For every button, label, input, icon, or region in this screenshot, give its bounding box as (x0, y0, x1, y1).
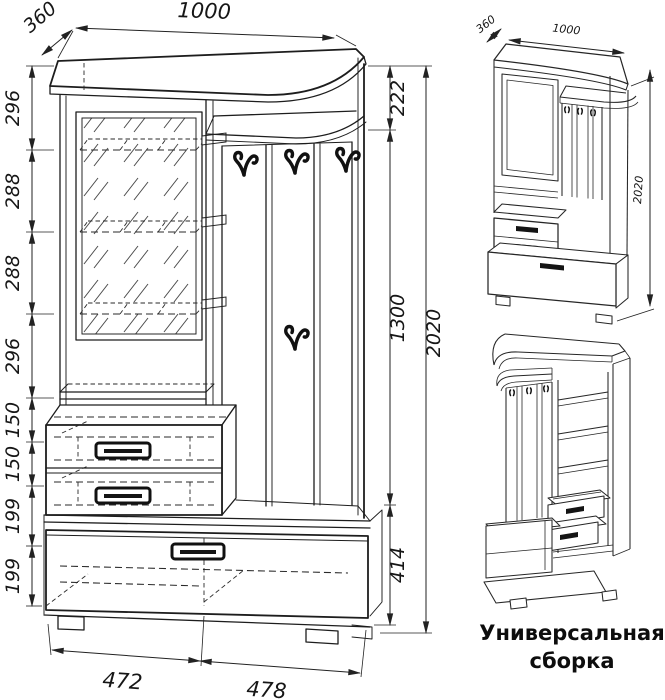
drawing-svg: 1000 360 296 288 288 29 (0, 0, 665, 700)
dim-left-288a: 288 (2, 173, 24, 209)
cabinet-foot (510, 598, 527, 609)
cabinet-foot (596, 314, 612, 324)
drawer-handle (96, 443, 150, 458)
dim-left-199b: 199 (2, 558, 24, 594)
assembled-iso-view: 360 1000 2020 (474, 13, 654, 324)
dim-depth: 360 (19, 0, 61, 37)
dim-width: 1000 (177, 0, 231, 24)
curved-shelf (206, 111, 366, 144)
cabinet-foot (306, 629, 338, 644)
dim-left-150b: 150 (2, 446, 24, 482)
coat-hook-icon (565, 107, 570, 113)
dim-right-222: 222 (387, 80, 409, 116)
coat-hook-icon (578, 109, 583, 115)
cabinet-foot (602, 590, 617, 601)
coat-hook-icon (527, 388, 532, 394)
caption-line2: сборка (530, 649, 615, 673)
dim-right-1300: 1300 (387, 294, 409, 342)
dim-overall-height: 2020 (423, 309, 445, 357)
iso-dim-height: 2020 (631, 175, 646, 204)
bottom-cabinet (44, 500, 382, 644)
coat-hook-icon (286, 151, 308, 174)
coat-hook-icon (235, 153, 257, 176)
dim-bottom-478: 478 (246, 677, 288, 700)
caption-line1: Универсальная (479, 621, 664, 645)
cabinet-foot (58, 616, 84, 630)
dim-left-288b: 288 (2, 255, 24, 291)
dim-left-150a: 150 (2, 402, 24, 438)
coat-hook-icon (544, 386, 549, 392)
iso-dim-depth: 360 (474, 13, 499, 36)
furniture-technical-drawing-page: 1000 360 296 288 288 29 (0, 0, 665, 700)
coat-hook-icon (286, 327, 308, 350)
coat-hook-icon (337, 149, 359, 172)
dim-bottom-472: 472 (102, 668, 144, 695)
cabinet-foot (496, 296, 510, 306)
iso-dim-width: 1000 (552, 22, 581, 38)
dim-right-414: 414 (387, 547, 409, 583)
universal-iso-view (484, 334, 630, 609)
open-shelf (60, 384, 214, 399)
door-handle (172, 544, 224, 559)
dim-left-199a: 199 (2, 498, 24, 534)
top-board (50, 49, 364, 95)
drawer-unit (46, 405, 236, 515)
main-front-view: 1000 360 296 288 288 29 (2, 0, 445, 700)
dim-left-296a: 296 (2, 90, 24, 126)
iso-mirror (502, 74, 558, 181)
coat-panel (222, 142, 352, 507)
drawer-handle (96, 488, 150, 503)
coat-hook-icon (510, 390, 515, 396)
dim-left-296b: 296 (2, 338, 24, 374)
